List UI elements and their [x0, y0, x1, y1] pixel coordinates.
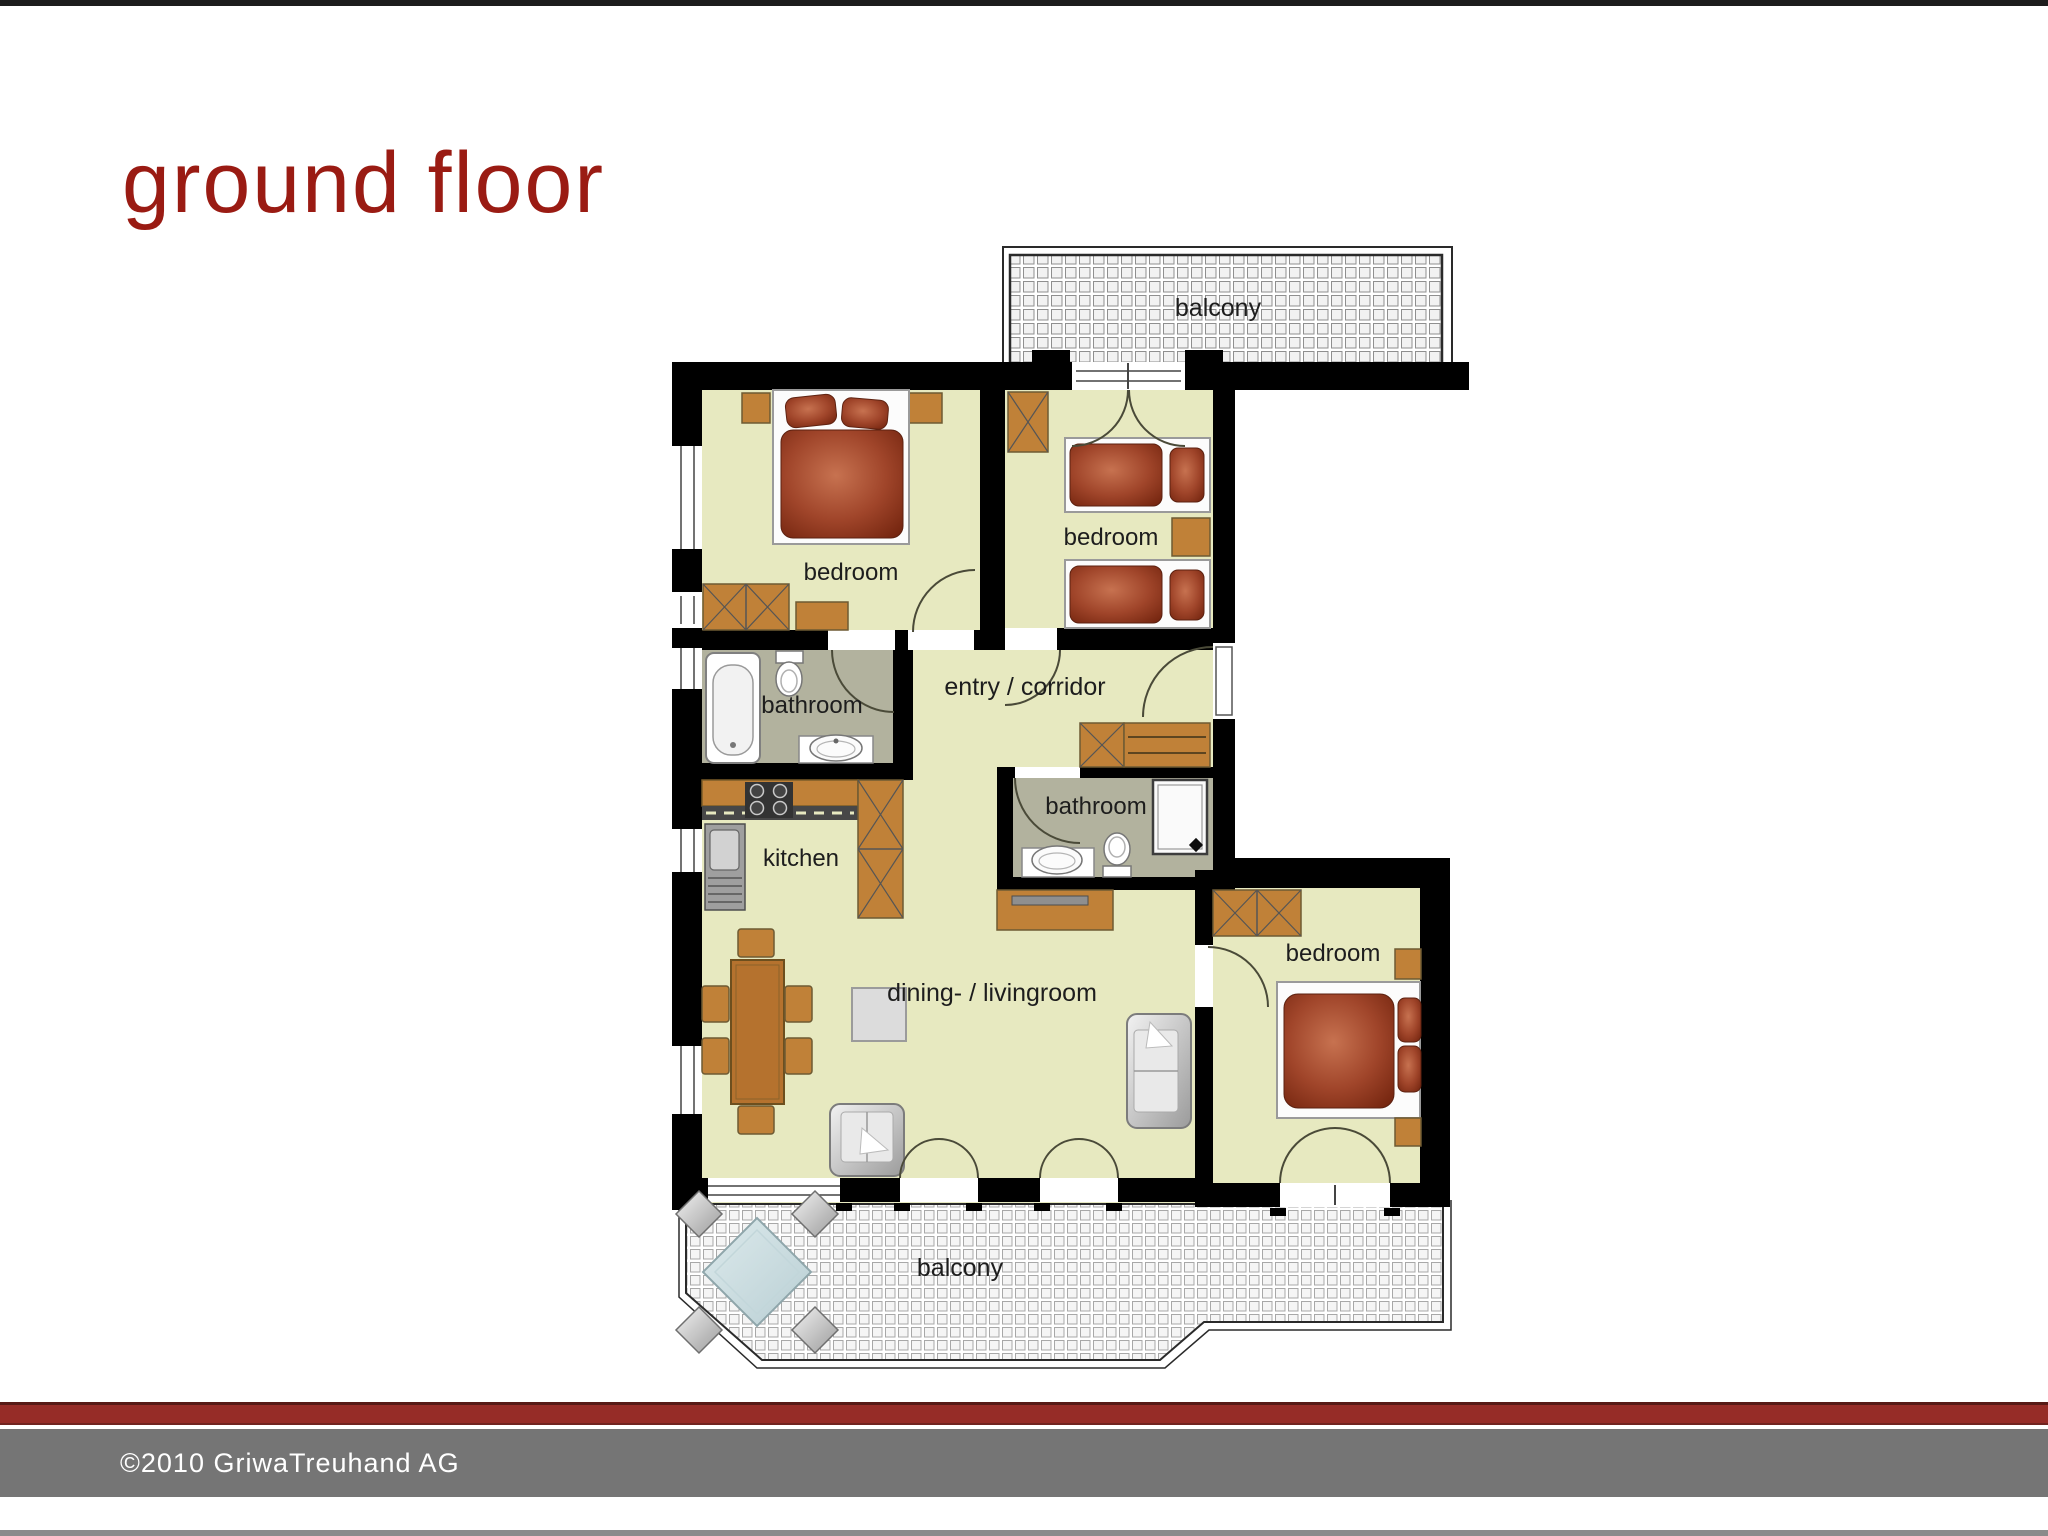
nightstand [1172, 518, 1210, 556]
double-bed [1277, 982, 1421, 1118]
dining-table [731, 960, 784, 1104]
copyright-text: ©2010 GriwaTreuhand AG [120, 1448, 460, 1479]
single-bed [1065, 438, 1210, 512]
stove [745, 782, 793, 818]
room-label-bedroom-top-right: bedroom [1064, 524, 1159, 551]
room-label-balcony-bottom: balcony [917, 1254, 1004, 1282]
bottom-edge-bar [0, 1530, 2048, 1536]
wardrobe [1213, 890, 1301, 936]
room-label-dining-livingroom: dining- / livingroom [887, 979, 1097, 1007]
page-title: ground floor [122, 134, 605, 233]
nightstand [1395, 949, 1421, 979]
room-label-bathroom-middle: bathroom [1045, 793, 1146, 820]
sofa [1127, 1014, 1191, 1128]
shower [1153, 780, 1207, 854]
wardrobe [703, 584, 789, 630]
corridor-closet [1080, 723, 1210, 767]
top-accent-bar [0, 0, 2048, 6]
single-bed [1065, 560, 1210, 628]
room-label-bedroom-top-left: bedroom [804, 559, 899, 586]
room-label-bathroom-left: bathroom [761, 692, 862, 719]
room-label-kitchen: kitchen [763, 845, 839, 872]
room-label-entry-corridor: entry / corridor [944, 673, 1105, 701]
tall-cabinet [858, 780, 903, 918]
sink [1022, 846, 1094, 877]
room-label-bedroom-right: bedroom [1286, 940, 1381, 967]
nightstand [1395, 1118, 1421, 1146]
toilet [1103, 833, 1131, 877]
double-bed [773, 390, 909, 544]
bathtub [706, 653, 760, 763]
sink [799, 735, 873, 763]
wardrobe [1008, 392, 1048, 452]
armchair [830, 1104, 904, 1176]
footer-bar: ©2010 GriwaTreuhand AG [0, 1429, 2048, 1497]
fridge [705, 824, 745, 910]
toilet [776, 651, 803, 696]
room-label-balcony-top: balcony [1175, 294, 1262, 322]
floor-plan: balcony bedroom bedroom entry / corridor… [640, 240, 1470, 1380]
bottom-accent-bar [0, 1402, 2048, 1425]
tv-cabinet [997, 890, 1113, 930]
